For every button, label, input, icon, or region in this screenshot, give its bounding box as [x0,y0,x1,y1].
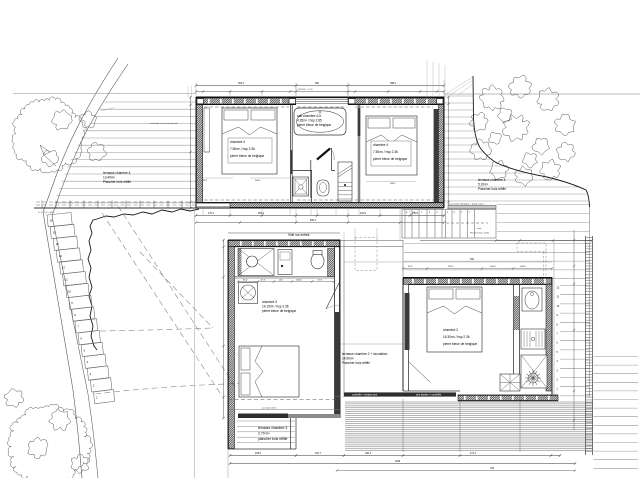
svg-text:520.1: 520.1 [310,219,317,222]
svg-text:231.9: 231.9 [360,212,367,215]
svg-text:170.1: 170.1 [208,212,215,215]
svg-text:Plancher bois rétifié: Plancher bois rétifié [470,232,490,235]
svg-text:5.10m²: 5.10m² [478,183,488,187]
svg-text:764: 764 [490,467,495,470]
svg-text:terrasse chambre 2 + circulati: terrasse chambre 2 + circulation [342,352,388,356]
svg-text:100.9: 100.9 [490,266,496,268]
svg-text:14.15m² / hsp 2.36: 14.15m² / hsp 2.36 [262,305,289,309]
svg-text:pierre bleue de belgique: pierre bleue de belgique [262,309,296,313]
svg-text:terrasse chambre 4: terrasse chambre 4 [103,171,131,175]
svg-text:pierre bleue de belgique: pierre bleue de belgique [297,123,331,127]
svg-text:chambre 3: chambre 3 [262,300,277,304]
svg-text:Plancher bois rétifié: Plancher bois rétifié [478,187,506,191]
svg-text:471.4: 471.4 [470,452,477,455]
svg-text:4.35m² / hsp 2.85: 4.35m² / hsp 2.85 [297,119,322,123]
svg-text:haut: haut [477,227,482,230]
svg-text:17 x 17,6 = 300: 17 x 17,6 = 300 [38,212,54,214]
svg-text:passerelle métallique + garde: passerelle métallique + garde corps [449,203,485,206]
svg-text:Plancher bois rétifié: Plancher bois rétifié [103,180,131,184]
svg-text:terrasse chambre 5: terrasse chambre 5 [478,178,506,182]
svg-text:590: 590 [470,258,475,261]
svg-text:pierre bleue de belgique: pierre bleue de belgique [443,342,477,346]
svg-text:243.5: 243.5 [255,452,262,455]
svg-text:358.4: 358.4 [390,82,397,85]
svg-text:160.1: 160.1 [255,180,261,182]
svg-text:180.2: 180.2 [390,183,396,185]
svg-text:7.50m² / hsp 2.36: 7.50m² / hsp 2.36 [373,150,398,154]
svg-text:terrasse chambre 3: terrasse chambre 3 [258,426,287,430]
svg-text:chambre 4: chambre 4 [373,143,388,147]
svg-text:chambre 2: chambre 2 [443,328,458,332]
svg-text:pierre bleue de belgique: pierre bleue de belgique [373,157,407,161]
svg-text:13.40m²: 13.40m² [103,176,115,180]
svg-text:7.50m² / hsp 2.36: 7.50m² / hsp 2.36 [230,147,255,151]
svg-text:pierre bleue de belgique: pierre bleue de belgique [230,154,264,158]
svg-text:353.4: 353.4 [238,82,245,85]
svg-text:axe baie vitrée: axe baie vitrée [262,407,277,410]
svg-text:sdb chambre 4-5: sdb chambre 4-5 [297,114,321,118]
svg-text:plancher bois rétifié: plancher bois rétifié [258,437,288,441]
svg-text:chambre 4: chambre 4 [230,140,245,144]
svg-text:Plancher bois rétifié: Plancher bois rétifié [342,361,370,365]
svg-text:128.6: 128.6 [520,266,526,268]
svg-text:600: 600 [315,82,320,85]
svg-text:corbeille + lavabo axe: corbeille + lavabo axe [352,393,378,397]
svg-text:222.0: 222.0 [448,266,454,268]
svg-text:16.30m² / hsp 2.36: 16.30m² / hsp 2.36 [443,335,470,339]
svg-text:253.4: 253.4 [258,212,265,215]
svg-text:+352.84 / +1.20: +352.84 / +1.20 [297,89,313,91]
svg-text:Vide sur entrée: Vide sur entrée [288,233,310,237]
svg-text:axe lavabo + corbeille: axe lavabo + corbeille [416,393,442,397]
svg-text:100.6: 100.6 [296,280,302,282]
svg-text:2.70 m²: 2.70 m² [258,432,270,436]
svg-text:220.4: 220.4 [365,452,372,455]
svg-text:181.7: 181.7 [315,452,322,455]
svg-text:servitude vue et vue parcelle: servitude vue et vue parcelle [150,122,179,125]
svg-text:14.50m²: 14.50m² [342,357,354,361]
svg-text:1180: 1180 [395,460,401,463]
